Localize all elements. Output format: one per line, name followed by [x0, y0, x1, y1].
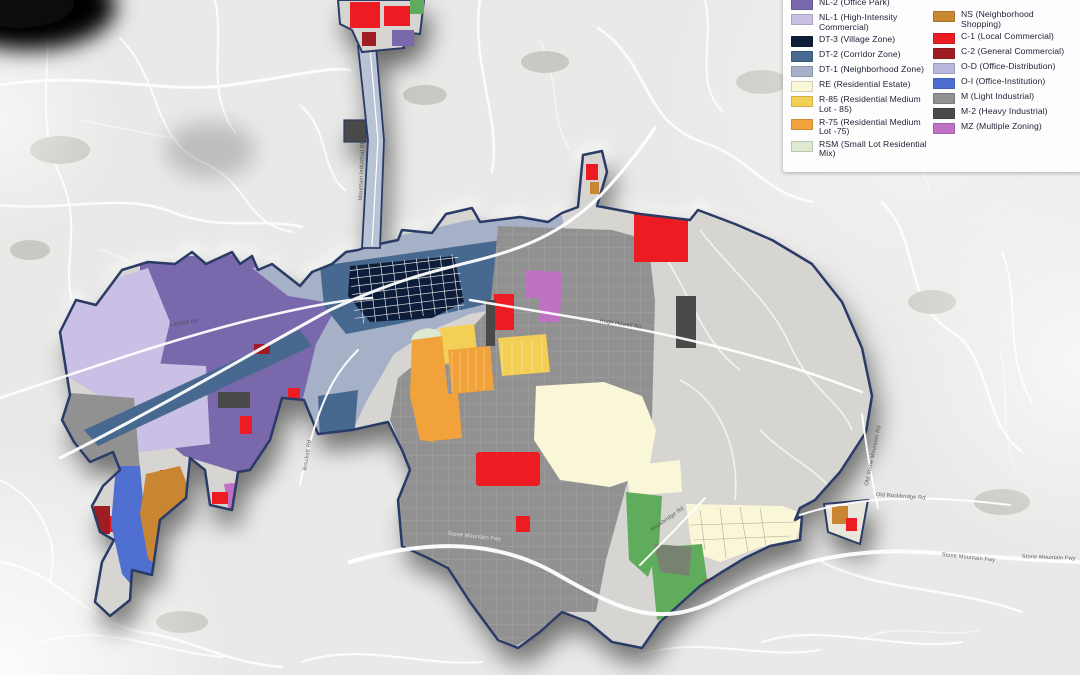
- legend-item-O-I: O-I (Office-Institution): [933, 77, 1071, 89]
- legend-item-C-1: C-1 (Local Commercial): [933, 32, 1071, 44]
- legend-item-label: DT-2 (Corridor Zone): [819, 50, 901, 60]
- legend-item-label: NL-2 (Office Park): [819, 0, 890, 8]
- legend-swatch-R-85: [791, 96, 813, 107]
- legend-swatch-O-I: [933, 78, 955, 89]
- legend-swatch-MZ: [933, 123, 955, 134]
- legend-item-label: RSM (Small Lot Residential Mix): [819, 140, 929, 159]
- legend-item-RSM: RSM (Small Lot Residential Mix): [791, 140, 929, 159]
- legend-item-R-75: R-75 (Residential Medium Lot -75): [791, 118, 929, 137]
- legend-item-NL-2: NL-2 (Office Park): [791, 0, 929, 10]
- legend-item-NS: NS (Neighborhood Shopping): [933, 10, 1071, 29]
- legend-item-label: NS (Neighborhood Shopping): [961, 10, 1071, 29]
- legend-swatch-M: [933, 93, 955, 104]
- legend-item-label: O-I (Office-Institution): [961, 77, 1045, 87]
- legend-item-label: C-2 (General Commercial): [961, 47, 1064, 57]
- legend-swatch-NL-1: [791, 14, 813, 25]
- legend-swatch-NS: [933, 11, 955, 22]
- legend-swatch-C-2: [933, 48, 955, 59]
- legend-item-O-D: O-D (Office-Distribution): [933, 62, 1071, 74]
- legend-swatch-O-D: [933, 63, 955, 74]
- legend-item-label: R-85 (Residential Medium Lot - 85): [819, 95, 929, 114]
- legend-item-M-2: M-2 (Heavy Industrial): [933, 107, 1071, 119]
- legend-item-DT-1: DT-1 (Neighborhood Zone): [791, 65, 929, 77]
- legend-item-label: MZ (Multiple Zoning): [961, 122, 1042, 132]
- zoning-map-screenshot: NL-2 (Office Park)NL-1 (High-Intensity C…: [0, 0, 1080, 675]
- legend-swatch-DT-3: [791, 36, 813, 47]
- legend-item-label: C-1 (Local Commercial): [961, 32, 1054, 42]
- legend-item-R-85: R-85 (Residential Medium Lot - 85): [791, 95, 929, 114]
- legend-column-left: NL-2 (Office Park)NL-1 (High-Intensity C…: [791, 0, 929, 162]
- legend-swatch-RE: [791, 81, 813, 92]
- legend: NL-2 (Office Park)NL-1 (High-Intensity C…: [783, 0, 1080, 172]
- legend-item-label: DT-3 (Village Zone): [819, 35, 895, 45]
- legend-swatch-NL-2: [791, 0, 813, 10]
- legend-swatch-DT-2: [791, 51, 813, 62]
- legend-item-label: R-75 (Residential Medium Lot -75): [819, 118, 929, 137]
- legend-item-MZ: MZ (Multiple Zoning): [933, 122, 1071, 134]
- legend-item-NL-1: NL-1 (High-Intensity Commercial): [791, 13, 929, 32]
- legend-swatch-M-2: [933, 108, 955, 119]
- legend-item-C-2: C-2 (General Commercial): [933, 47, 1071, 59]
- legend-item-label: NL-1 (High-Intensity Commercial): [819, 13, 929, 32]
- legend-swatch-C-1: [933, 33, 955, 44]
- legend-item-RE: RE (Residential Estate): [791, 80, 929, 92]
- legend-item-label: M (Light Industrial): [961, 92, 1034, 102]
- legend-item-DT-2: DT-2 (Corridor Zone): [791, 50, 929, 62]
- legend-swatch-DT-1: [791, 66, 813, 77]
- legend-item-label: O-D (Office-Distribution): [961, 62, 1056, 72]
- legend-swatch-R-75: [791, 119, 813, 130]
- legend-item-label: M-2 (Heavy Industrial): [961, 107, 1048, 117]
- legend-item-DT-3: DT-3 (Village Zone): [791, 35, 929, 47]
- legend-item-label: RE (Residential Estate): [819, 80, 911, 90]
- legend-item-M: M (Light Industrial): [933, 92, 1071, 104]
- legend-item-label: DT-1 (Neighborhood Zone): [819, 65, 924, 75]
- legend-swatch-RSM: [791, 141, 813, 152]
- legend-column-right: NS (Neighborhood Shopping)C-1 (Local Com…: [933, 0, 1071, 162]
